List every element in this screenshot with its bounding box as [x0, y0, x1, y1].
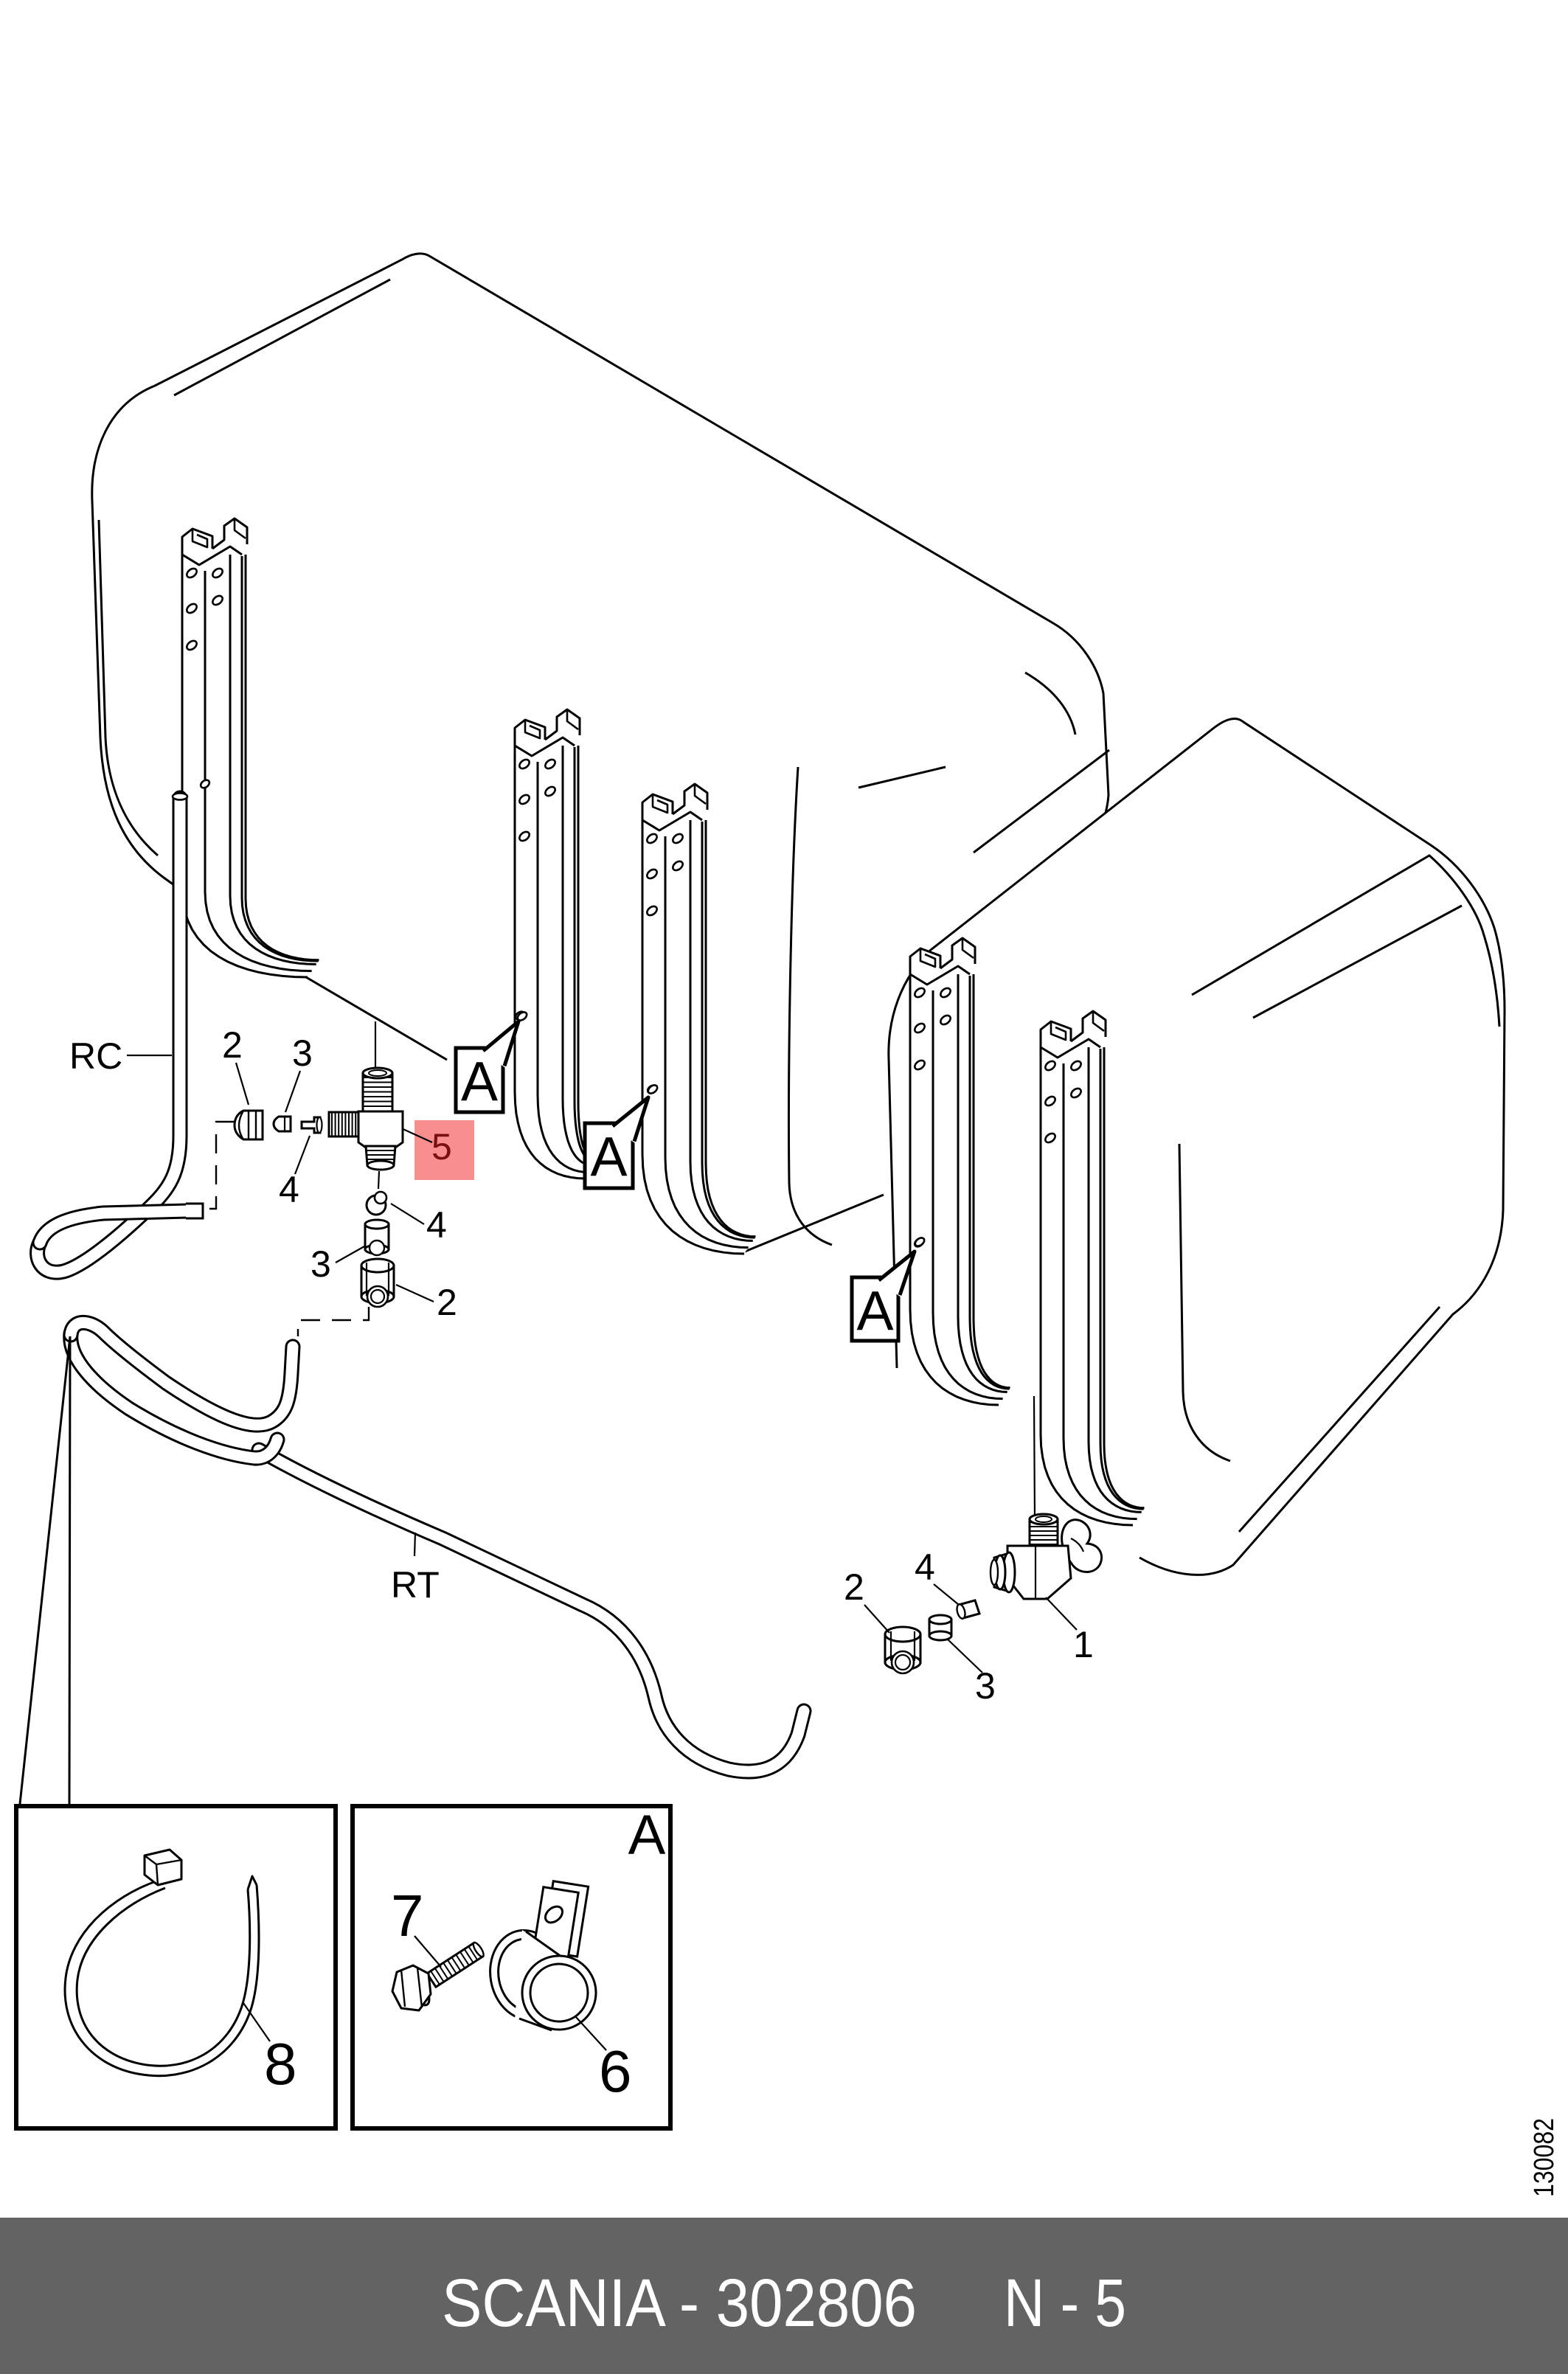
- svg-text:4: 4: [279, 1169, 299, 1210]
- svg-text:A: A: [590, 1125, 627, 1187]
- svg-text:4: 4: [915, 1547, 935, 1588]
- svg-text:A: A: [461, 1050, 498, 1112]
- svg-text:RT: RT: [391, 1564, 440, 1606]
- svg-text:3: 3: [311, 1243, 331, 1285]
- svg-text:SCANIA - 302806: SCANIA - 302806: [442, 2266, 917, 2341]
- svg-text:130082: 130082: [1529, 2118, 1560, 2197]
- svg-text:RC: RC: [69, 1035, 122, 1077]
- svg-text:2: 2: [437, 1282, 457, 1323]
- svg-text:7: 7: [391, 1883, 424, 1948]
- svg-text:A: A: [628, 1804, 666, 1867]
- svg-text:3: 3: [292, 1032, 313, 1074]
- svg-text:3: 3: [975, 1665, 996, 1707]
- svg-text:4: 4: [426, 1204, 447, 1246]
- svg-text:5: 5: [431, 1126, 452, 1167]
- svg-text:A: A: [856, 1280, 893, 1342]
- svg-text:2: 2: [844, 1566, 864, 1608]
- svg-text:N - 5: N - 5: [1004, 2266, 1126, 2341]
- svg-text:2: 2: [222, 1024, 243, 1066]
